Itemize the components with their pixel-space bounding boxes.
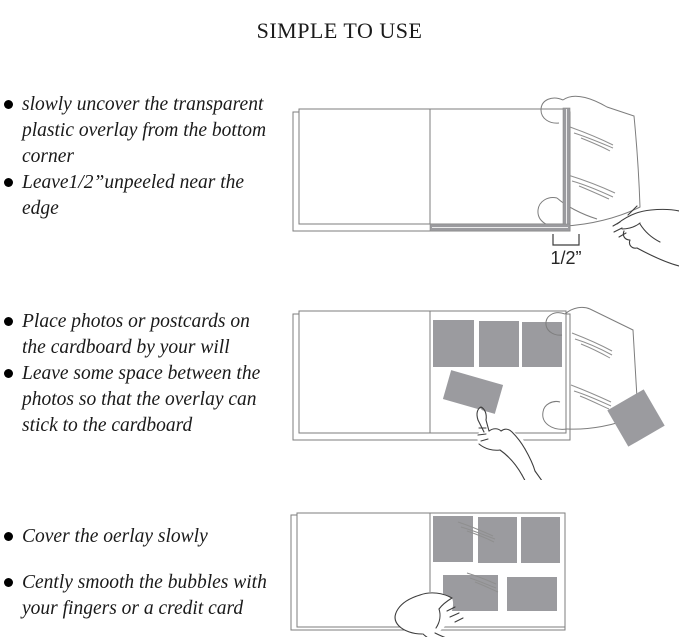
- shine-lines: [568, 127, 615, 199]
- instruction-text: Leave some space between the photos so t…: [22, 361, 260, 439]
- hand-icon: [613, 206, 679, 268]
- bullet-dot: [4, 532, 13, 541]
- instruction-line: Leave some space between the: [22, 361, 260, 387]
- instruction-line: photos so that the overlay can: [22, 387, 260, 413]
- bullet-dot: [4, 100, 13, 109]
- instruction-line: stick to the cardboard: [22, 413, 260, 439]
- instruction-line: Cover the oerlay slowly: [22, 524, 208, 550]
- instruction-line: plastic overlay from the bottom: [22, 118, 266, 144]
- illustration-peel-overlay: 1/2”: [283, 85, 679, 270]
- instruction-line: Cently smooth the bubbles with: [22, 570, 267, 596]
- instruction-text: Cover the oerlay slowly: [22, 524, 208, 550]
- instruction-line: your fingers or a credit card: [22, 596, 267, 622]
- bullet-dot: [4, 178, 13, 187]
- instruction-text: Place photos or postcards on the cardboa…: [22, 309, 250, 361]
- step-2-notes: Place photos or postcards on the cardboa…: [4, 309, 304, 439]
- photo-placeholder: [522, 322, 562, 367]
- bullet-dot: [4, 369, 13, 378]
- instruction-text: Leave1/2”unpeeled near the edge: [22, 170, 244, 222]
- instruction-bullet: slowly uncover the transparent plastic o…: [4, 92, 304, 170]
- half-inch-label: 1/2”: [550, 248, 581, 268]
- instruction-bullet: Cover the oerlay slowly: [4, 524, 304, 550]
- half-inch-bracket: [553, 234, 579, 245]
- instruction-line: corner: [22, 144, 266, 170]
- instruction-line: slowly uncover the transparent: [22, 92, 266, 118]
- photo-square-tilted: [607, 389, 664, 446]
- photo-placeholder: [507, 577, 557, 611]
- photo-placeholder: [479, 321, 519, 367]
- step-1-notes: slowly uncover the transparent plastic o…: [4, 92, 304, 222]
- instruction-bullet: Leave some space between the photos so t…: [4, 361, 304, 439]
- instruction-bullet: Cently smooth the bubbles with your fing…: [4, 570, 304, 622]
- step-3-notes: Cover the oerlay slowly Cently smooth th…: [4, 524, 304, 622]
- instruction-bullet: Leave1/2”unpeeled near the edge: [4, 170, 304, 222]
- photo-placeholder: [433, 320, 474, 367]
- album-left-page: [299, 109, 430, 224]
- instruction-bullet: Place photos or postcards on the cardboa…: [4, 309, 304, 361]
- illustration-cover-overlay: [283, 505, 679, 637]
- illustration-place-photos: [283, 298, 679, 480]
- album-left-page: [299, 311, 430, 433]
- photo-placeholder: [478, 517, 517, 563]
- shine-lines: [571, 333, 612, 409]
- photo-placeholder: [433, 516, 473, 562]
- photo-placeholder: [521, 517, 560, 563]
- album-right-page: [430, 109, 566, 224]
- instruction-line: the cardboard by your will: [22, 335, 250, 361]
- bullet-dot: [4, 578, 13, 587]
- instruction-sheet: SIMPLE TO USE slowly uncover the transpa…: [0, 0, 679, 637]
- instruction-line: edge: [22, 196, 244, 222]
- instruction-line: Leave1/2”unpeeled near the: [22, 170, 244, 196]
- instruction-text: Cently smooth the bubbles with your fing…: [22, 570, 267, 622]
- instruction-line: Place photos or postcards on: [22, 309, 250, 335]
- instruction-text: slowly uncover the transparent plastic o…: [22, 92, 266, 170]
- page-title: SIMPLE TO USE: [0, 18, 679, 44]
- bullet-dot: [4, 317, 13, 326]
